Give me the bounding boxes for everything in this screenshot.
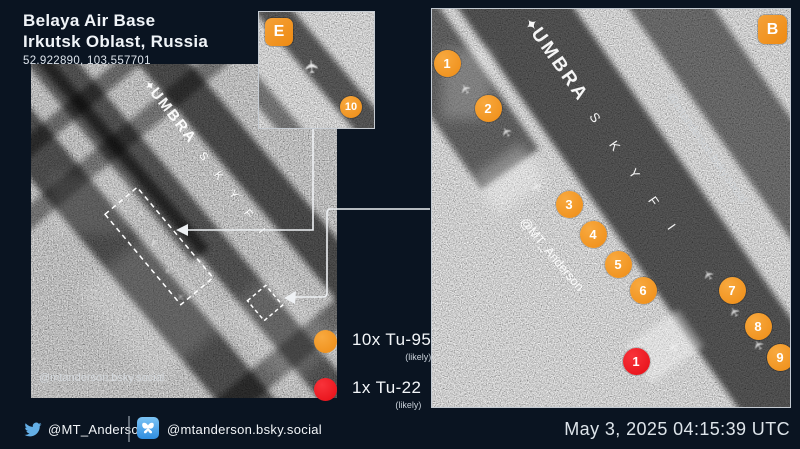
tu22-marker-dot [314,378,337,401]
bluesky-watermark: @mtanderson.bsky.social [39,372,164,384]
inset-e-badge: E [265,18,293,46]
terrain-patch [51,174,131,234]
sar-image-detail-b: ✦UMBRAS K Y F I @mtanderson.bsky.social … [431,8,791,408]
twitter-handle-label: @MT_Anderson [48,422,146,437]
bluesky-handle-label: @mtanderson.bsky.social [167,422,322,437]
coordinates-label: 52.922890, 103.557701 [23,55,208,67]
marker-orange-6: 6 [630,277,657,304]
panel-b-badge: B [758,15,787,44]
page-subtitle: Irkutsk Oblast, Russia [23,31,208,52]
inset-detail-e: ✈ E 10 [258,11,375,129]
marker-orange-2: 2 [475,95,502,122]
page-title: Belaya Air Base [23,10,208,31]
tu95-qualifier-label: (likely) [405,352,431,362]
marker-red-1: 1 [623,348,650,375]
bluesky-icon [137,417,159,439]
aircraft-icon: ✈ [301,58,323,75]
legend-item-tu22: 1x Tu-22 (likely) [314,378,431,410]
marker-orange-5: 5 [605,251,632,278]
footer-bar: @MT_Anderson @mtanderson.bsky.social May… [0,409,800,449]
marker-orange-8: 8 [745,313,772,340]
marker-orange-9: 9 [767,344,792,371]
marker-orange-1: 1 [434,50,461,77]
footer-divider [128,416,130,442]
tu95-marker-dot [314,330,337,353]
tu95-count-label: 10x Tu-95 [352,330,431,350]
header-block: Belaya Air Base Irkutsk Oblast, Russia 5… [23,10,208,67]
marker-orange-3: 3 [556,191,583,218]
tu22-count-label: 1x Tu-22 [352,378,421,398]
infographic-canvas: Belaya Air Base Irkutsk Oblast, Russia 5… [0,0,800,449]
marker-orange-4: 4 [580,221,607,248]
marker-10: 10 [340,96,362,118]
marker-orange-7: 7 [719,277,746,304]
twitter-icon [23,421,43,438]
legend-item-tu95: 10x Tu-95 (likely) [314,330,431,362]
capture-timestamp: May 3, 2025 04:15:39 UTC [564,419,790,440]
